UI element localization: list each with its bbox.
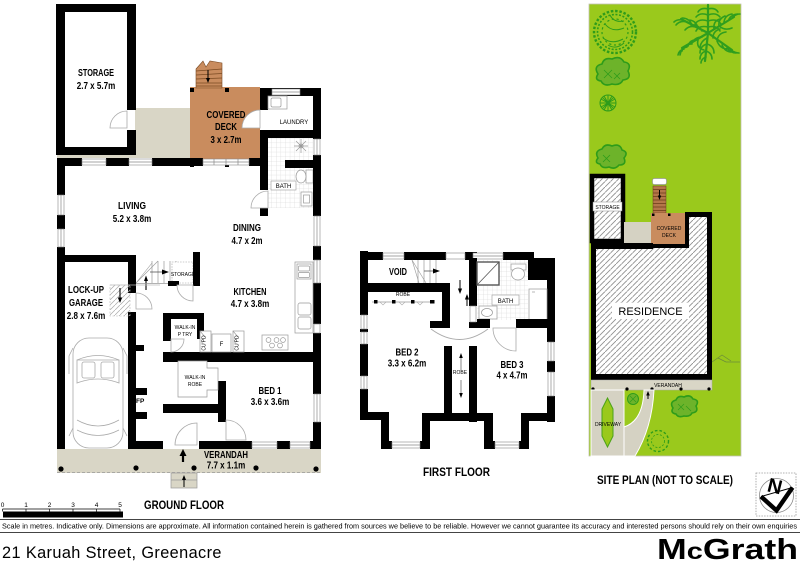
svg-text:VERANDAH: VERANDAH bbox=[204, 450, 248, 461]
svg-text:BED 1: BED 1 bbox=[259, 386, 282, 397]
svg-text:FIRST FLOOR: FIRST FLOOR bbox=[423, 465, 490, 479]
svg-text:McGrath: McGrath bbox=[657, 534, 798, 563]
svg-text:Scale in metres. Indicative on: Scale in metres. Indicative only. Dimens… bbox=[2, 522, 797, 531]
svg-text:4: 4 bbox=[95, 502, 99, 509]
svg-text:4.7 x 2m: 4.7 x 2m bbox=[232, 236, 263, 247]
svg-text:ROBE: ROBE bbox=[453, 370, 468, 376]
svg-text:SITE PLAN (NOT TO SCALE): SITE PLAN (NOT TO SCALE) bbox=[597, 473, 733, 487]
svg-text:P TRY: P TRY bbox=[178, 332, 193, 338]
svg-text:STORAGE: STORAGE bbox=[78, 68, 114, 79]
svg-text:KITCHEN: KITCHEN bbox=[234, 287, 267, 298]
svg-text:F: F bbox=[220, 342, 224, 348]
svg-text:VOID: VOID bbox=[389, 267, 407, 278]
svg-text:5: 5 bbox=[118, 502, 122, 509]
svg-text:LOCK-UP: LOCK-UP bbox=[68, 285, 104, 296]
svg-text:ROBE: ROBE bbox=[396, 292, 411, 298]
svg-text:7.7 x 1.1m: 7.7 x 1.1m bbox=[207, 461, 246, 472]
svg-text:CU'PD: CU'PD bbox=[235, 335, 241, 351]
svg-text:DINING: DINING bbox=[233, 223, 261, 234]
svg-text:DRIVEWAY: DRIVEWAY bbox=[595, 422, 622, 428]
svg-text:DECK: DECK bbox=[215, 122, 237, 133]
svg-text:DECK: DECK bbox=[662, 233, 677, 239]
svg-text:GARAGE: GARAGE bbox=[69, 298, 103, 309]
svg-text:ROBE: ROBE bbox=[188, 382, 203, 388]
svg-text:VERANDAH: VERANDAH bbox=[654, 383, 682, 389]
svg-text:LIVING: LIVING bbox=[118, 201, 146, 212]
svg-text:STORAGE: STORAGE bbox=[171, 272, 196, 278]
svg-text:3.6 x 3.6m: 3.6 x 3.6m bbox=[251, 397, 290, 408]
svg-text:3.3 x 6.2m: 3.3 x 6.2m bbox=[388, 359, 427, 370]
svg-text:3: 3 bbox=[71, 502, 75, 509]
svg-text:3 x 2.7m: 3 x 2.7m bbox=[211, 135, 242, 146]
svg-text:STORAGE: STORAGE bbox=[595, 205, 620, 211]
svg-text:FP: FP bbox=[136, 398, 145, 405]
svg-text:21 Karuah Street, Greenacre: 21 Karuah Street, Greenacre bbox=[2, 544, 222, 562]
svg-text:2: 2 bbox=[48, 502, 52, 509]
svg-text:BED 3: BED 3 bbox=[501, 360, 524, 371]
svg-text:2.7 x 5.7m: 2.7 x 5.7m bbox=[77, 81, 116, 92]
svg-text:BATH: BATH bbox=[276, 184, 292, 190]
svg-text:2.8 x 7.6m: 2.8 x 7.6m bbox=[67, 311, 106, 322]
svg-text:4 x 4.7m: 4 x 4.7m bbox=[497, 371, 528, 382]
svg-text:LAUNDRY: LAUNDRY bbox=[280, 120, 309, 126]
svg-text:CU'PD: CU'PD bbox=[202, 335, 208, 351]
svg-text:COVERED: COVERED bbox=[207, 110, 246, 121]
svg-text:4.7 x 3.8m: 4.7 x 3.8m bbox=[231, 299, 270, 310]
svg-text:RESIDENCE: RESIDENCE bbox=[618, 306, 682, 318]
svg-text:BATH: BATH bbox=[498, 299, 514, 305]
svg-text:0: 0 bbox=[1, 502, 5, 509]
svg-text:5.2 x 3.8m: 5.2 x 3.8m bbox=[113, 214, 152, 225]
svg-text:COVERED: COVERED bbox=[657, 226, 682, 232]
svg-text:BED 2: BED 2 bbox=[396, 348, 419, 359]
svg-text:WALK-IN: WALK-IN bbox=[175, 325, 196, 331]
svg-text:WALK-IN: WALK-IN bbox=[185, 375, 206, 381]
svg-text:1: 1 bbox=[24, 502, 28, 509]
svg-text:GROUND FLOOR: GROUND FLOOR bbox=[144, 498, 224, 512]
